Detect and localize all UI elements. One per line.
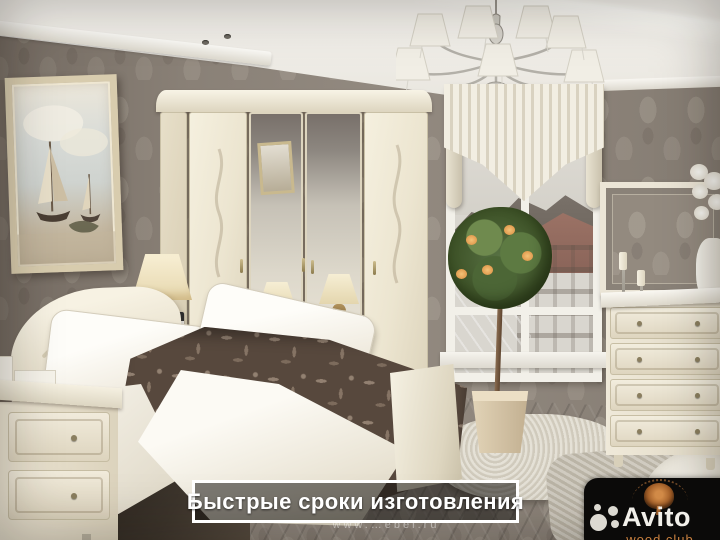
bedroom-photo: Быстрые сроки изготовления www.…ebel.ru … [0, 0, 720, 540]
wardrobe-door [364, 112, 428, 390]
wardrobe-cornice [156, 90, 432, 112]
avito-badge: Avito wood club [584, 478, 720, 540]
plant-foliage [448, 207, 552, 309]
wood-club-text: wood club [614, 532, 706, 540]
promo-banner: Быстрые сроки изготовления [192, 480, 519, 523]
plant-pot [468, 391, 532, 453]
avito-logo-icon [608, 506, 618, 516]
drawer [8, 470, 110, 520]
door-handle [302, 258, 305, 272]
drawer [610, 307, 720, 339]
orange-flower [482, 265, 493, 275]
avito-logo-icon [594, 504, 601, 511]
drawer [610, 415, 720, 447]
drawer [8, 412, 110, 462]
candle [619, 252, 627, 270]
site-watermark: www.…ebel.ru [296, 519, 476, 531]
orange-flower [466, 235, 477, 245]
dresser-leg [706, 458, 715, 470]
promo-banner-label: Быстрые сроки изготовления [187, 489, 524, 515]
nightstand-body [0, 402, 118, 540]
ceiling-spotlight [202, 40, 209, 45]
white-flowers [688, 162, 720, 242]
drawer [610, 379, 720, 411]
door-handle [311, 260, 314, 274]
door-handle [240, 259, 243, 273]
dresser [606, 290, 720, 472]
orange-flower [504, 225, 515, 235]
avito-logo-icon [590, 514, 607, 531]
dresser-body [606, 303, 720, 455]
drawer [610, 343, 720, 375]
lamp-reflection [319, 274, 359, 304]
ceiling-spotlight [224, 34, 231, 39]
avito-brand-text: Avito [622, 502, 714, 533]
avito-logo-icon [611, 520, 619, 528]
nightstand-leg [82, 534, 91, 540]
plant-trunk [494, 305, 502, 397]
orange-flower [522, 251, 533, 261]
bed-footboard [390, 364, 462, 492]
nightstand [0, 384, 122, 540]
dresser-leg [614, 455, 623, 467]
door-handle [373, 261, 376, 275]
painting-reflection [257, 141, 295, 195]
seascape-painting [5, 74, 124, 274]
orange-flower [456, 269, 467, 279]
candle [637, 270, 645, 286]
